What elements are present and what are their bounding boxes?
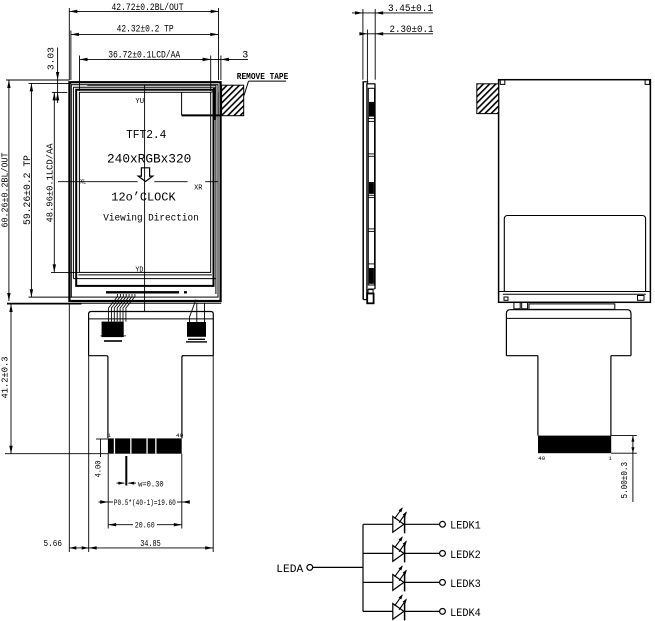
svg-text:P0.5*(40-1)=19.60: P0.5*(40-1)=19.60 [114,498,176,508]
svg-text:20.60: 20.60 [135,521,155,530]
svg-text:REMOVE TAPE: REMOVE TAPE [237,71,289,82]
svg-text:42.72±0.2BL/OUT: 42.72±0.2BL/OUT [112,2,184,14]
svg-text:LEDK2: LEDK2 [450,550,481,562]
svg-text:XR: XR [194,185,203,193]
svg-text:LEDK1: LEDK1 [450,521,481,533]
svg-text:Viewing Direction: Viewing Direction [103,213,198,225]
svg-text:34.85: 34.85 [140,539,161,549]
svg-text:YU: YU [135,98,144,106]
svg-text:XL: XL [80,178,86,185]
svg-text:LEDK3: LEDK3 [450,579,481,591]
svg-text:LEDK4: LEDK4 [450,608,481,620]
svg-text:40: 40 [176,432,183,439]
svg-text:3: 3 [242,51,248,62]
svg-text:59.26±0.2 TP: 59.26±0.2 TP [23,155,34,225]
svg-text:60.26±0.2BL/OUT: 60.26±0.2BL/OUT [0,152,10,227]
svg-text:TFT2.4: TFT2.4 [126,128,166,142]
svg-text:48.96±0.1LCD/AA: 48.96±0.1LCD/AA [45,143,56,222]
svg-text:240xRGBx320: 240xRGBx320 [107,151,191,166]
svg-text:2.30±0.1: 2.30±0.1 [390,25,434,36]
svg-text:3.45±0.1: 3.45±0.1 [388,4,433,15]
svg-text:3.03: 3.03 [47,47,57,70]
svg-text:w=0.30: w=0.30 [138,480,164,489]
svg-text:5.00±0.3: 5.00±0.3 [619,462,630,499]
svg-text:YD: YD [135,266,143,274]
svg-text:41.2±0.3: 41.2±0.3 [0,356,10,398]
svg-text:4.00: 4.00 [94,460,103,477]
svg-text:42.32±0.2 TP: 42.32±0.2 TP [117,23,174,35]
svg-text:40: 40 [538,455,545,462]
svg-text:5.66: 5.66 [44,539,63,549]
svg-text:36.72±0.1LCD/AA: 36.72±0.1LCD/AA [108,49,180,61]
svg-text:LEDA: LEDA [276,564,303,576]
svg-text:12o’CLOCK: 12o’CLOCK [111,190,176,204]
